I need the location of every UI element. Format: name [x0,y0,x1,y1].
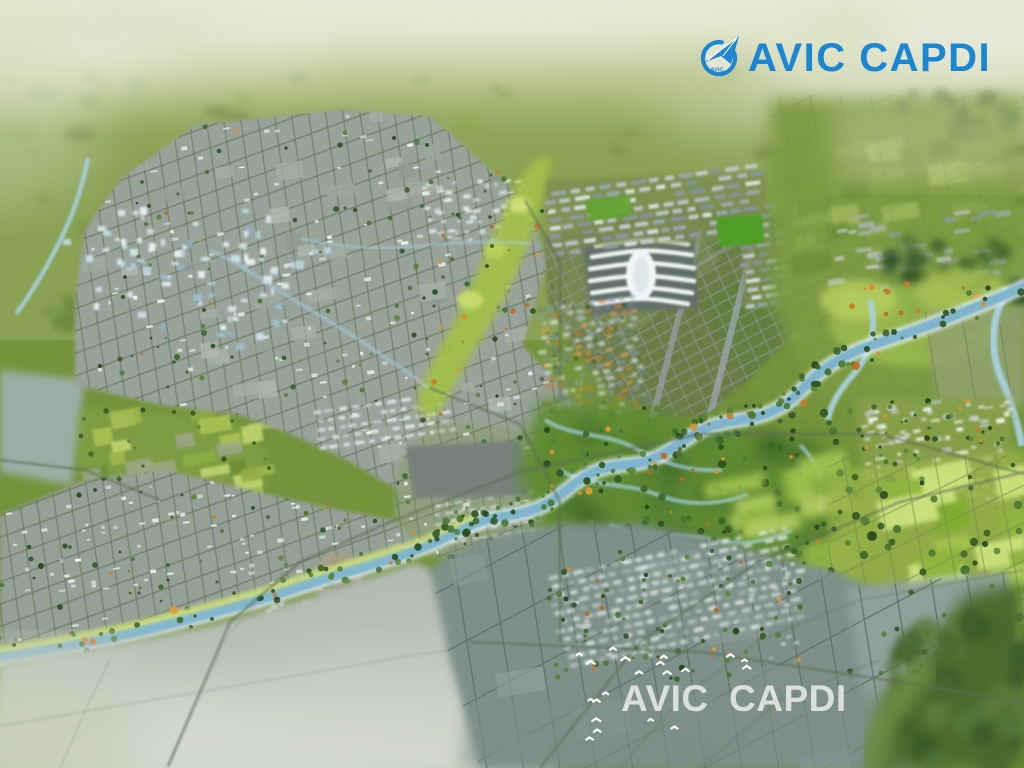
svg-text:AVIC: AVIC [710,68,724,74]
svg-text:CAPDI: CAPDI [729,678,847,719]
svg-text:AVIC CAPDI: AVIC CAPDI [748,36,991,80]
svg-text:AVIC: AVIC [621,678,709,719]
